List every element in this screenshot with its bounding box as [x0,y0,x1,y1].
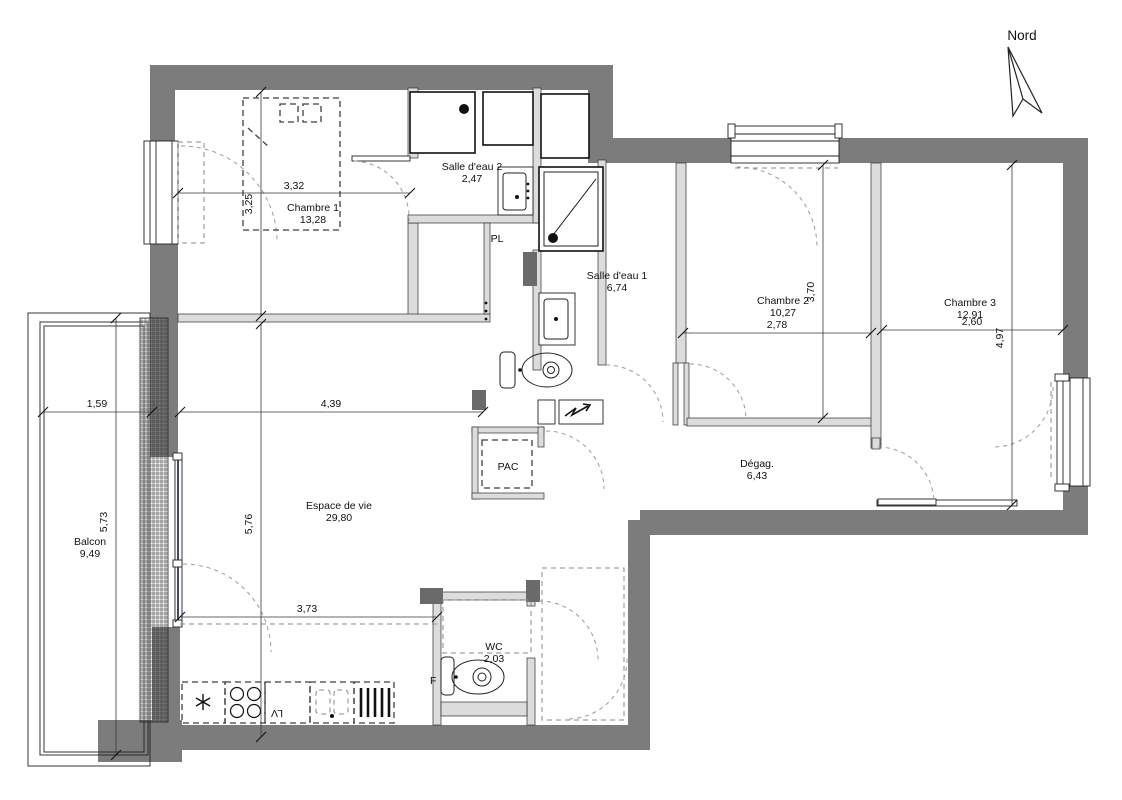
room-label-balcon: Balcon [74,536,106,548]
hall-door-swing [567,659,627,719]
room-area-chambre2: 10,27 [770,307,796,319]
room-area-salle-eau-2: 2,47 [462,173,483,185]
washbasin-2-icon [485,293,575,345]
dim-living-depth: 5,76 [243,514,255,535]
balcony-screen [140,318,168,722]
shower-icon [539,167,603,251]
pac-door-swing [546,431,604,489]
window-chambre1 [144,141,277,244]
room-label-chambre2: Chambre 2 [757,295,809,307]
room-label-espace-de-vie: Espace de vie [306,500,372,512]
chambre1-door-leaf [352,156,410,161]
chambre1-door-swing [354,161,409,221]
bathroom-door-swing [606,365,663,422]
oven-label: F [430,675,436,687]
room-area-chambre3: 12,91 [957,309,983,321]
entry-zone [542,568,624,720]
closet-label-pl: PL [491,233,504,245]
entry-door-leaf [878,499,936,505]
washbasin-icon [498,167,533,215]
fixtures [410,92,624,720]
dim-chambre1-width: 3,32 [284,180,305,192]
storage-box-2 [541,94,589,158]
sliding-glass-door [173,453,271,652]
room-label-chambre3: Chambre 3 [944,297,996,309]
dishwasher-label: LV [271,707,283,719]
drainer-bars-icon [361,688,389,717]
storage-box [483,92,533,145]
floor-plan-svg: F LV 3,32 3,25 2,78 3,70 2,60 4,97 1,59 … [0,0,1122,800]
north-label: Nord [1007,28,1036,43]
room-area-espace-de-vie: 29,80 [326,512,352,524]
room-label-salle-eau-1: Salle d'eau 1 [587,270,648,282]
cooktop-box [225,682,265,723]
room-label-chambre1: Chambre 1 [287,202,339,214]
closet-label-pac: PAC [498,461,519,473]
entry-door-swing [878,447,934,503]
cooktop-burners-icon [231,688,261,718]
dim-chambre3-depth: 4,97 [994,328,1006,349]
room-label-wc: WC [485,641,503,653]
dim-chambre2-width: 2,78 [767,319,788,331]
wc-door-swing [539,601,598,660]
room-area-balcon: 9,49 [80,548,101,560]
dim-kitchen-width: 3,73 [297,603,318,615]
window-chambre2 [728,124,842,247]
floor-plan: F LV 3,32 3,25 2,78 3,70 2,60 4,97 1,59 … [0,0,1122,800]
room-area-chambre1: 13,28 [300,214,326,226]
electrical-panel-icon [538,400,603,424]
glass-door-swing [183,564,271,652]
room-area-degagement: 6,43 [747,470,768,482]
dim-balcon-width: 1,59 [87,398,108,410]
room-label-degagement: Dégag. [740,458,774,470]
chambre2-door-swing [690,364,746,420]
room-label-salle-eau-2: Salle d'eau 2 [442,161,503,173]
washer-box [410,92,475,153]
kitchen-sink-icon [316,690,348,718]
room-area-salle-eau-1: 6,74 [607,282,628,294]
dim-chambre1-depth: 3,25 [243,194,255,215]
north-arrow-icon [1008,47,1042,116]
washer-knob-icon [459,104,469,114]
room-area-wc: 2,03 [484,653,505,665]
fridge-star-icon [196,694,210,710]
window-chambre3 [993,374,1090,491]
north-arrow: Nord [1007,28,1042,116]
dim-balcon-depth: 5,73 [98,512,110,533]
dim-living-width: 4,39 [321,398,342,410]
kitchen: F LV [180,624,437,723]
